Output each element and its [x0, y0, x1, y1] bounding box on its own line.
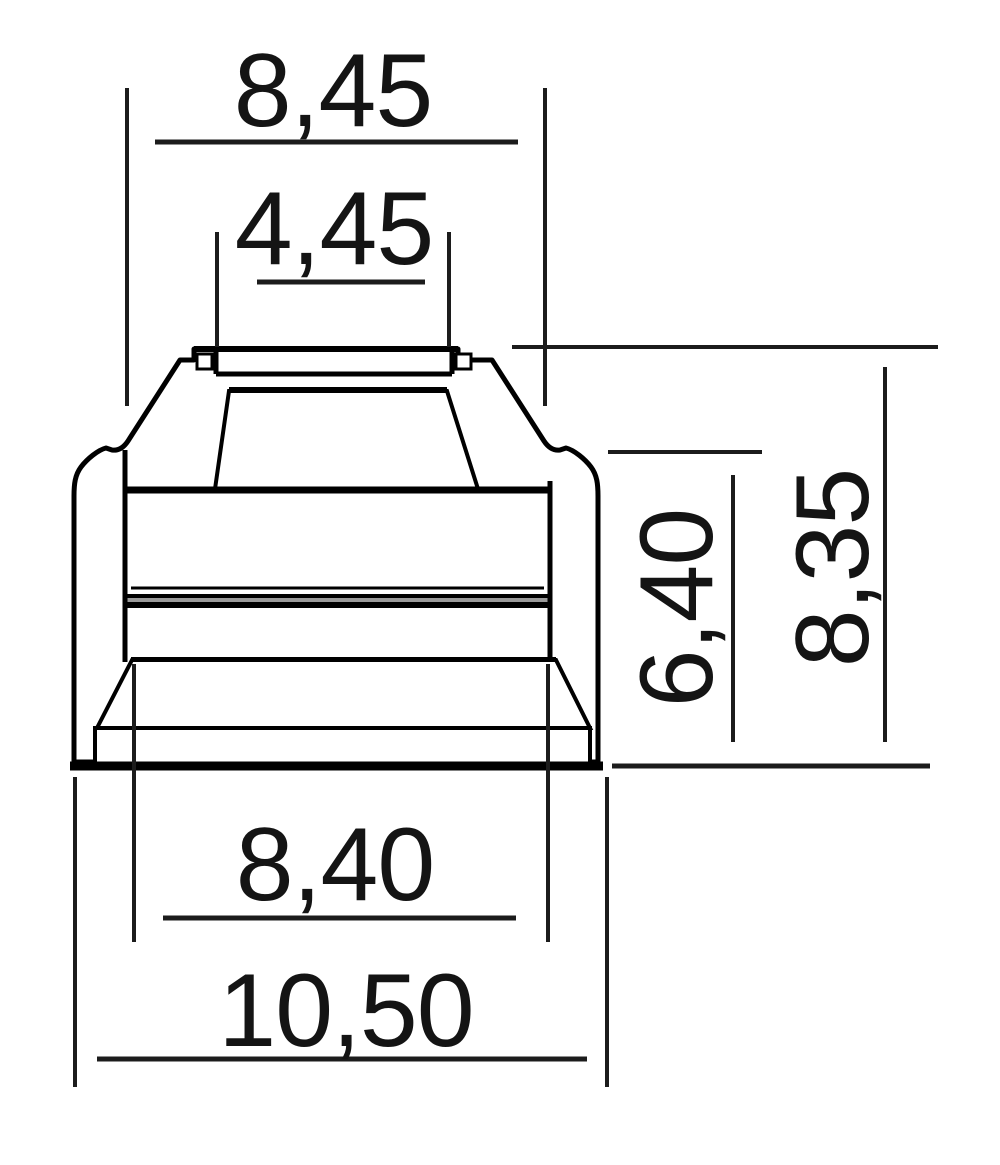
- dimension-label-10-50: 10,50: [218, 953, 473, 1069]
- dimension-label-4-45: 4,45: [235, 171, 433, 287]
- valve-stem-seal-drawing: 8,45 4,45 6,40 8,35 8,40: [0, 0, 1000, 1165]
- dimension-label-8-45: 8,45: [234, 33, 432, 149]
- base-cavity: [97, 660, 590, 728]
- technical-drawing-canvas: 8,45 4,45 6,40 8,35 8,40: [0, 0, 1000, 1165]
- dimension-inner-height: 6,40: [608, 452, 762, 742]
- dimension-label-6-40: 6,40: [619, 509, 735, 707]
- lip-notch-left: [197, 354, 212, 369]
- dimension-label-8-40: 8,40: [236, 807, 434, 923]
- seal-cross-section: [70, 349, 603, 766]
- lip-upper-gap: [216, 351, 452, 372]
- base-band: [95, 728, 590, 764]
- stem-bore-void: [215, 391, 478, 489]
- dimension-stem-bore-width: 4,45: [217, 171, 449, 347]
- dimension-overall-height: 8,35: [775, 367, 891, 742]
- insert-cavity: [127, 489, 548, 662]
- lip-notch-right: [456, 354, 471, 369]
- dimension-label-8-35: 8,35: [775, 469, 891, 667]
